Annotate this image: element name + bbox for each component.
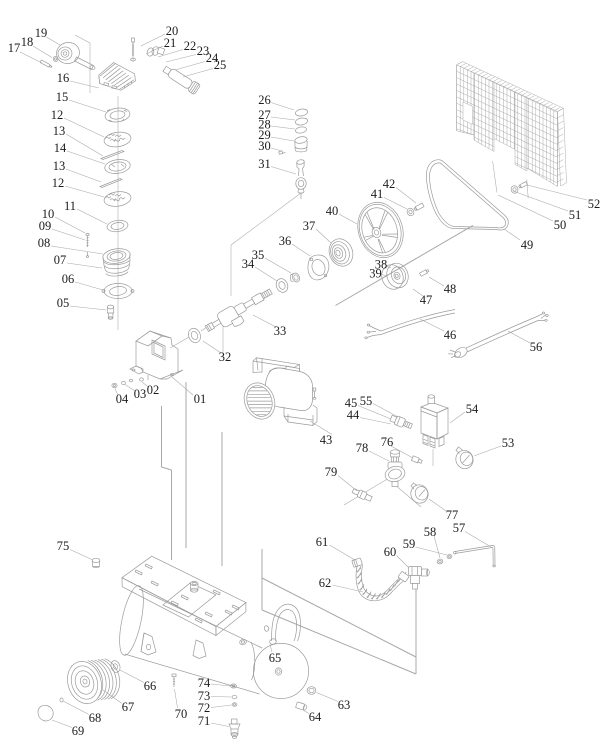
svg-text:12: 12 bbox=[51, 108, 64, 122]
svg-text:05: 05 bbox=[57, 296, 70, 310]
svg-text:36: 36 bbox=[279, 234, 292, 248]
svg-text:26: 26 bbox=[258, 93, 271, 107]
svg-text:68: 68 bbox=[89, 711, 102, 725]
svg-text:60: 60 bbox=[384, 545, 397, 559]
svg-text:66: 66 bbox=[144, 679, 157, 693]
svg-text:64: 64 bbox=[309, 710, 322, 724]
svg-text:31: 31 bbox=[258, 157, 271, 171]
svg-text:18: 18 bbox=[21, 35, 34, 49]
svg-text:06: 06 bbox=[62, 272, 75, 286]
svg-text:79: 79 bbox=[325, 465, 338, 479]
svg-text:11: 11 bbox=[64, 199, 76, 213]
svg-text:30: 30 bbox=[258, 139, 271, 153]
svg-text:09: 09 bbox=[39, 219, 52, 233]
svg-text:53: 53 bbox=[502, 436, 515, 450]
svg-text:07: 07 bbox=[54, 253, 67, 267]
svg-text:49: 49 bbox=[521, 238, 534, 252]
svg-text:22: 22 bbox=[184, 39, 197, 53]
svg-text:59: 59 bbox=[403, 537, 416, 551]
svg-text:13: 13 bbox=[53, 124, 66, 138]
svg-text:03: 03 bbox=[134, 387, 147, 401]
svg-text:70: 70 bbox=[175, 707, 188, 721]
svg-text:08: 08 bbox=[38, 236, 51, 250]
svg-text:16: 16 bbox=[57, 71, 70, 85]
svg-text:48: 48 bbox=[444, 282, 457, 296]
svg-text:78: 78 bbox=[356, 441, 369, 455]
svg-text:72: 72 bbox=[198, 701, 211, 715]
svg-text:54: 54 bbox=[466, 402, 479, 416]
svg-text:67: 67 bbox=[122, 700, 135, 714]
svg-text:12: 12 bbox=[52, 176, 65, 190]
svg-text:58: 58 bbox=[424, 525, 437, 539]
svg-text:43: 43 bbox=[320, 433, 333, 447]
svg-text:25: 25 bbox=[214, 58, 227, 72]
svg-text:71: 71 bbox=[198, 714, 211, 728]
svg-text:73: 73 bbox=[198, 689, 211, 703]
svg-text:55: 55 bbox=[360, 394, 373, 408]
svg-text:19: 19 bbox=[35, 26, 48, 40]
svg-text:40: 40 bbox=[326, 204, 339, 218]
svg-text:13: 13 bbox=[53, 159, 66, 173]
svg-text:44: 44 bbox=[347, 408, 360, 422]
svg-text:04: 04 bbox=[116, 392, 129, 406]
svg-text:51: 51 bbox=[569, 208, 582, 222]
svg-text:57: 57 bbox=[453, 521, 466, 535]
svg-text:47: 47 bbox=[420, 293, 433, 307]
svg-text:17: 17 bbox=[8, 41, 21, 55]
svg-text:14: 14 bbox=[54, 141, 67, 155]
svg-text:37: 37 bbox=[303, 219, 316, 233]
svg-text:52: 52 bbox=[588, 197, 601, 211]
svg-text:45: 45 bbox=[345, 396, 358, 410]
svg-text:63: 63 bbox=[338, 698, 351, 712]
svg-text:56: 56 bbox=[530, 340, 543, 354]
svg-text:61: 61 bbox=[316, 535, 329, 549]
svg-text:35: 35 bbox=[252, 248, 265, 262]
svg-text:15: 15 bbox=[56, 90, 69, 104]
svg-text:74: 74 bbox=[198, 676, 211, 690]
svg-text:42: 42 bbox=[383, 177, 396, 191]
svg-text:76: 76 bbox=[381, 435, 394, 449]
svg-text:65: 65 bbox=[269, 651, 282, 665]
svg-text:39: 39 bbox=[369, 267, 382, 281]
svg-text:32: 32 bbox=[219, 350, 232, 364]
svg-text:46: 46 bbox=[444, 328, 457, 342]
svg-text:77: 77 bbox=[446, 508, 459, 522]
svg-text:75: 75 bbox=[57, 539, 70, 553]
svg-text:21: 21 bbox=[164, 36, 177, 50]
svg-text:69: 69 bbox=[72, 724, 85, 738]
svg-text:62: 62 bbox=[319, 576, 332, 590]
svg-text:41: 41 bbox=[371, 187, 384, 201]
svg-text:50: 50 bbox=[554, 218, 567, 232]
svg-text:33: 33 bbox=[274, 324, 287, 338]
svg-text:02: 02 bbox=[147, 383, 160, 397]
svg-text:01: 01 bbox=[194, 392, 207, 406]
